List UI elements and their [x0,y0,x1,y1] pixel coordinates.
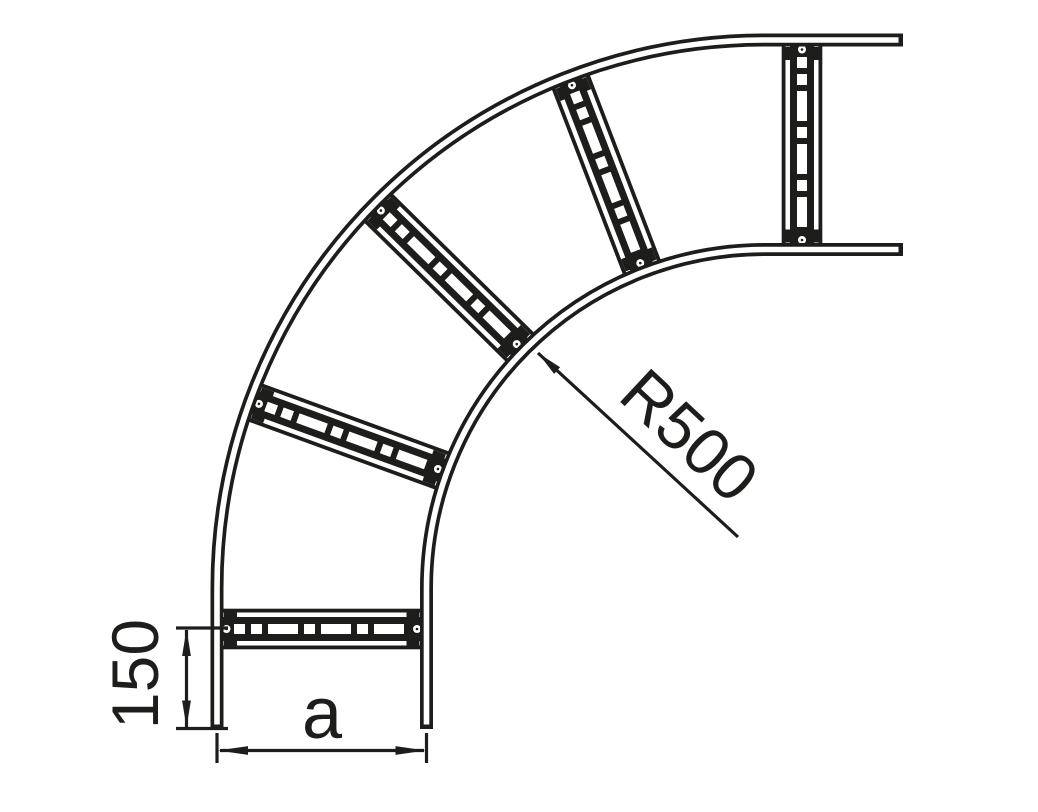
rung-3 [360,190,537,365]
cable-ladder-90-degree-bend-drawing: R500 150 a [0,0,1038,812]
rung-5 [782,41,823,250]
offset-arrow-down [182,701,191,728]
rung-4 [550,70,663,279]
rung-1 [218,609,427,650]
rung-2 [244,382,454,491]
radius-dimension: R500 [538,353,773,537]
width-dimension: a [217,674,427,763]
ladder [217,40,903,729]
offset-dimension: 150 [98,619,228,729]
width-arrow-left [218,746,248,755]
radius-arrowhead [538,353,560,374]
width-arrow-right [396,746,426,755]
offset-arrow-up [182,629,191,656]
width-label: a [302,674,343,754]
drawing-canvas: R500 150 a [0,0,1038,812]
offset-label: 150 [98,619,172,729]
